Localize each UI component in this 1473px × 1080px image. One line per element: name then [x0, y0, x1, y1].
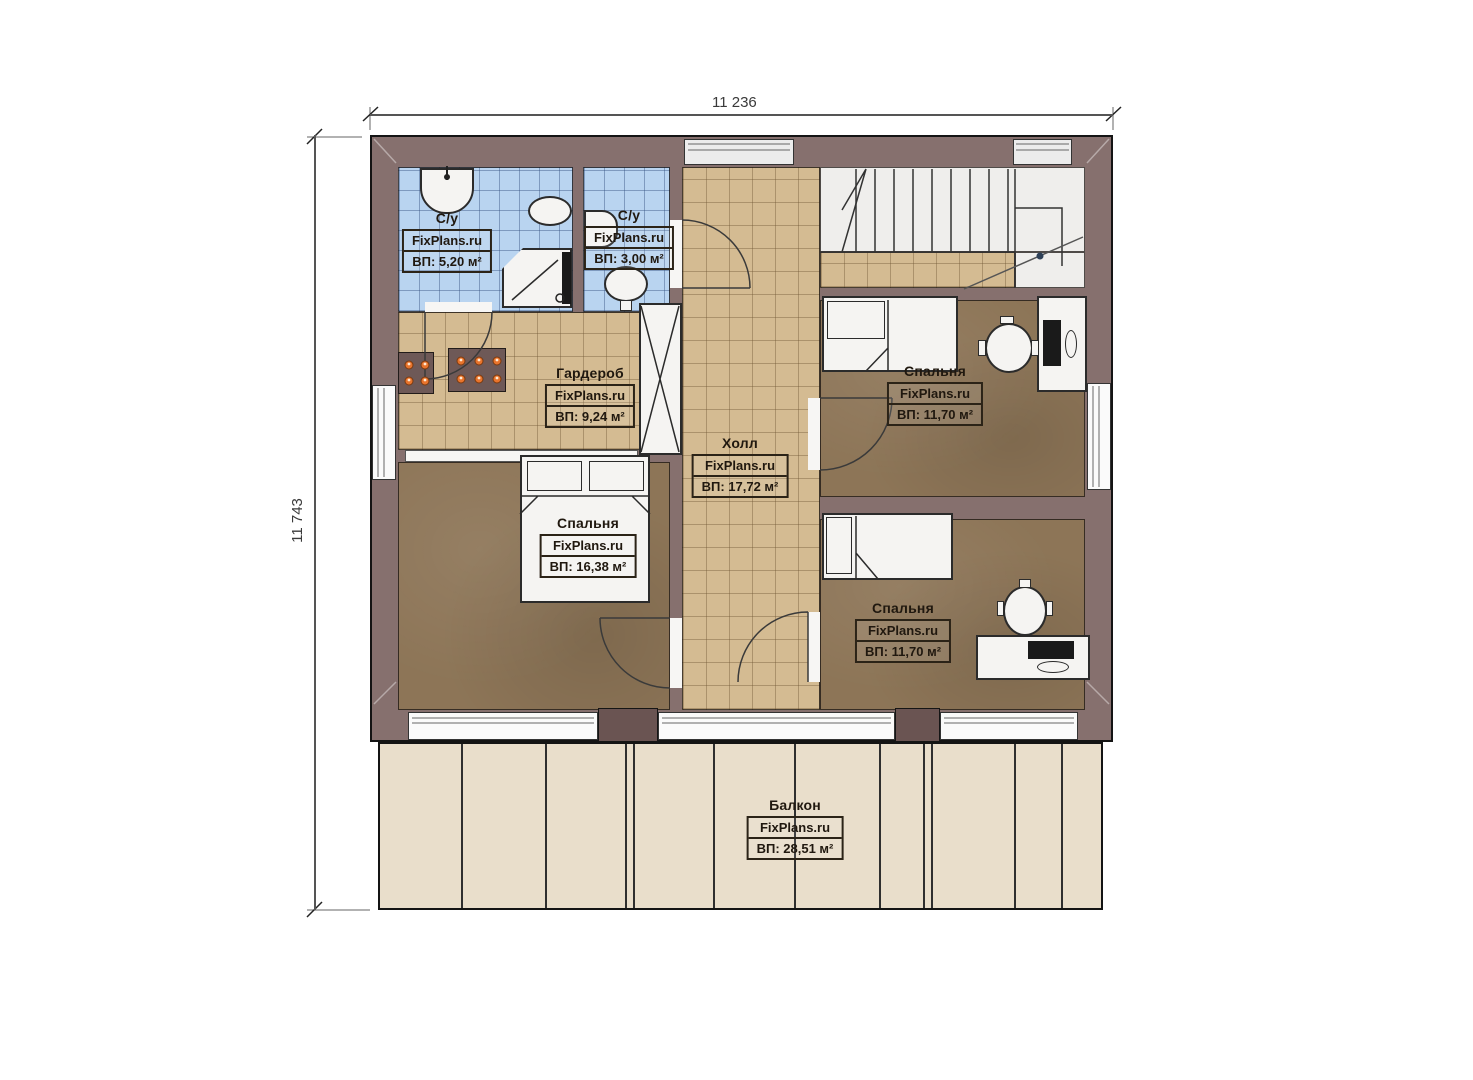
- pillow-icon: [827, 301, 885, 339]
- chair-armrest: [1031, 340, 1039, 356]
- printer-icon: [1028, 641, 1074, 659]
- room-label-bedroom-top-right: Спальня FixPlans.ru ВП: 11,70 м²: [887, 363, 983, 426]
- chair-headrest: [1019, 579, 1031, 588]
- toilet-icon: [528, 196, 572, 226]
- room-area: ВП: 16,38 м²: [542, 557, 635, 576]
- column-left: [598, 708, 658, 742]
- room-area: ВП: 17,72 м²: [694, 477, 787, 496]
- chair-armrest: [978, 340, 986, 356]
- watermark-text: FixPlans.ru: [749, 818, 842, 839]
- sink-pedestal-icon: [620, 300, 632, 311]
- room-area: ВП: 5,20 м²: [404, 252, 490, 271]
- room-info-box: FixPlans.ru ВП: 17,72 м²: [692, 454, 789, 498]
- door-gap-bedroom-master: [670, 618, 682, 688]
- watermark-text: FixPlans.ru: [586, 228, 672, 249]
- room-info-box: FixPlans.ru ВП: 11,70 м²: [855, 619, 951, 663]
- room-name: Спальня: [887, 363, 983, 379]
- watermark-text: FixPlans.ru: [694, 456, 787, 477]
- keyboard-icon: [1037, 661, 1069, 673]
- watermark-text: FixPlans.ru: [404, 231, 490, 252]
- pillow-icon: [527, 461, 582, 491]
- dimension-line-left: [314, 135, 316, 910]
- dimension-top-label: 11 236: [712, 94, 757, 111]
- room-info-box: FixPlans.ru ВП: 5,20 м²: [402, 229, 492, 273]
- watermark-text: FixPlans.ru: [542, 536, 635, 557]
- balcony-glazing-bedroom: [940, 712, 1078, 740]
- watermark-text: FixPlans.ru: [857, 621, 949, 642]
- pillow-icon: [826, 517, 852, 574]
- room-name: С/у: [402, 210, 492, 226]
- room-label-hall: Холл FixPlans.ru ВП: 17,72 м²: [692, 435, 789, 498]
- shoe-cabinet-small: [398, 352, 434, 394]
- window-top-stairs: [1013, 139, 1072, 165]
- balcony-glazing-master: [408, 712, 598, 740]
- sink-icon: [604, 266, 648, 302]
- room-info-box: FixPlans.ru ВП: 28,51 м²: [747, 816, 844, 860]
- room-info-box: FixPlans.ru ВП: 3,00 м²: [584, 226, 674, 270]
- chair-armrest: [1046, 601, 1053, 616]
- room-name: Гардероб: [545, 365, 635, 381]
- room-label-bathroom-large: С/у FixPlans.ru ВП: 5,20 м²: [402, 210, 492, 273]
- closet-icon: [639, 303, 682, 455]
- chair-armrest: [997, 601, 1004, 616]
- room-area: ВП: 3,00 м²: [586, 249, 672, 268]
- room-name: Балкон: [747, 797, 844, 813]
- desk-lamp-icon: [1065, 330, 1077, 358]
- room-info-box: FixPlans.ru ВП: 9,24 м²: [545, 384, 635, 428]
- room-name: С/у: [584, 207, 674, 223]
- door-gap-bedroom-top-right: [808, 398, 820, 470]
- floor-stairs: [820, 167, 1085, 252]
- window-top-hall: [684, 139, 794, 165]
- room-info-box: FixPlans.ru ВП: 11,70 м²: [887, 382, 983, 426]
- dimension-left-label: 11 743: [289, 498, 306, 543]
- room-name: Холл: [692, 435, 789, 451]
- room-label-bathroom-small: С/у FixPlans.ru ВП: 3,00 м²: [584, 207, 674, 270]
- room-area: ВП: 11,70 м²: [889, 405, 981, 424]
- column-right: [895, 708, 940, 742]
- pillow-icon: [589, 461, 644, 491]
- window-right-wall: [1087, 383, 1111, 490]
- room-label-wardrobe: Гардероб FixPlans.ru ВП: 9,24 м²: [545, 365, 635, 428]
- room-name: Спальня: [540, 515, 637, 531]
- window-left-wall: [372, 385, 396, 480]
- monitor-icon: [1043, 320, 1061, 366]
- watermark-text: FixPlans.ru: [889, 384, 981, 405]
- balcony-floor: [378, 742, 1103, 910]
- office-chair-icon: [1003, 586, 1047, 636]
- room-area: ВП: 28,51 м²: [749, 839, 842, 858]
- door-gap-bathroom-large: [425, 302, 492, 312]
- floor-plan-canvas: 11 236 11 743: [0, 0, 1473, 1080]
- floor-stairs-landing: [820, 252, 1015, 288]
- room-name: Спальня: [855, 600, 951, 616]
- room-info-box: FixPlans.ru ВП: 16,38 м²: [540, 534, 637, 578]
- room-label-bedroom-bottom-right: Спальня FixPlans.ru ВП: 11,70 м²: [855, 600, 951, 663]
- balcony-door-hall: [658, 712, 895, 740]
- chair-headrest: [1000, 316, 1014, 324]
- watermark-text: FixPlans.ru: [547, 386, 633, 407]
- door-gap-bedroom-bottom-right: [808, 612, 820, 682]
- floor-stairs-corner: [1015, 252, 1085, 288]
- office-chair-icon: [985, 323, 1033, 373]
- shower-panel-icon: [562, 252, 571, 304]
- room-label-bedroom-master: Спальня FixPlans.ru ВП: 16,38 м²: [540, 515, 637, 578]
- dimension-line-top: [370, 114, 1113, 116]
- room-area: ВП: 11,70 м²: [857, 642, 949, 661]
- room-area: ВП: 9,24 м²: [547, 407, 633, 426]
- room-label-balcony: Балкон FixPlans.ru ВП: 28,51 м²: [747, 797, 844, 860]
- shoe-cabinet-large: [448, 348, 506, 392]
